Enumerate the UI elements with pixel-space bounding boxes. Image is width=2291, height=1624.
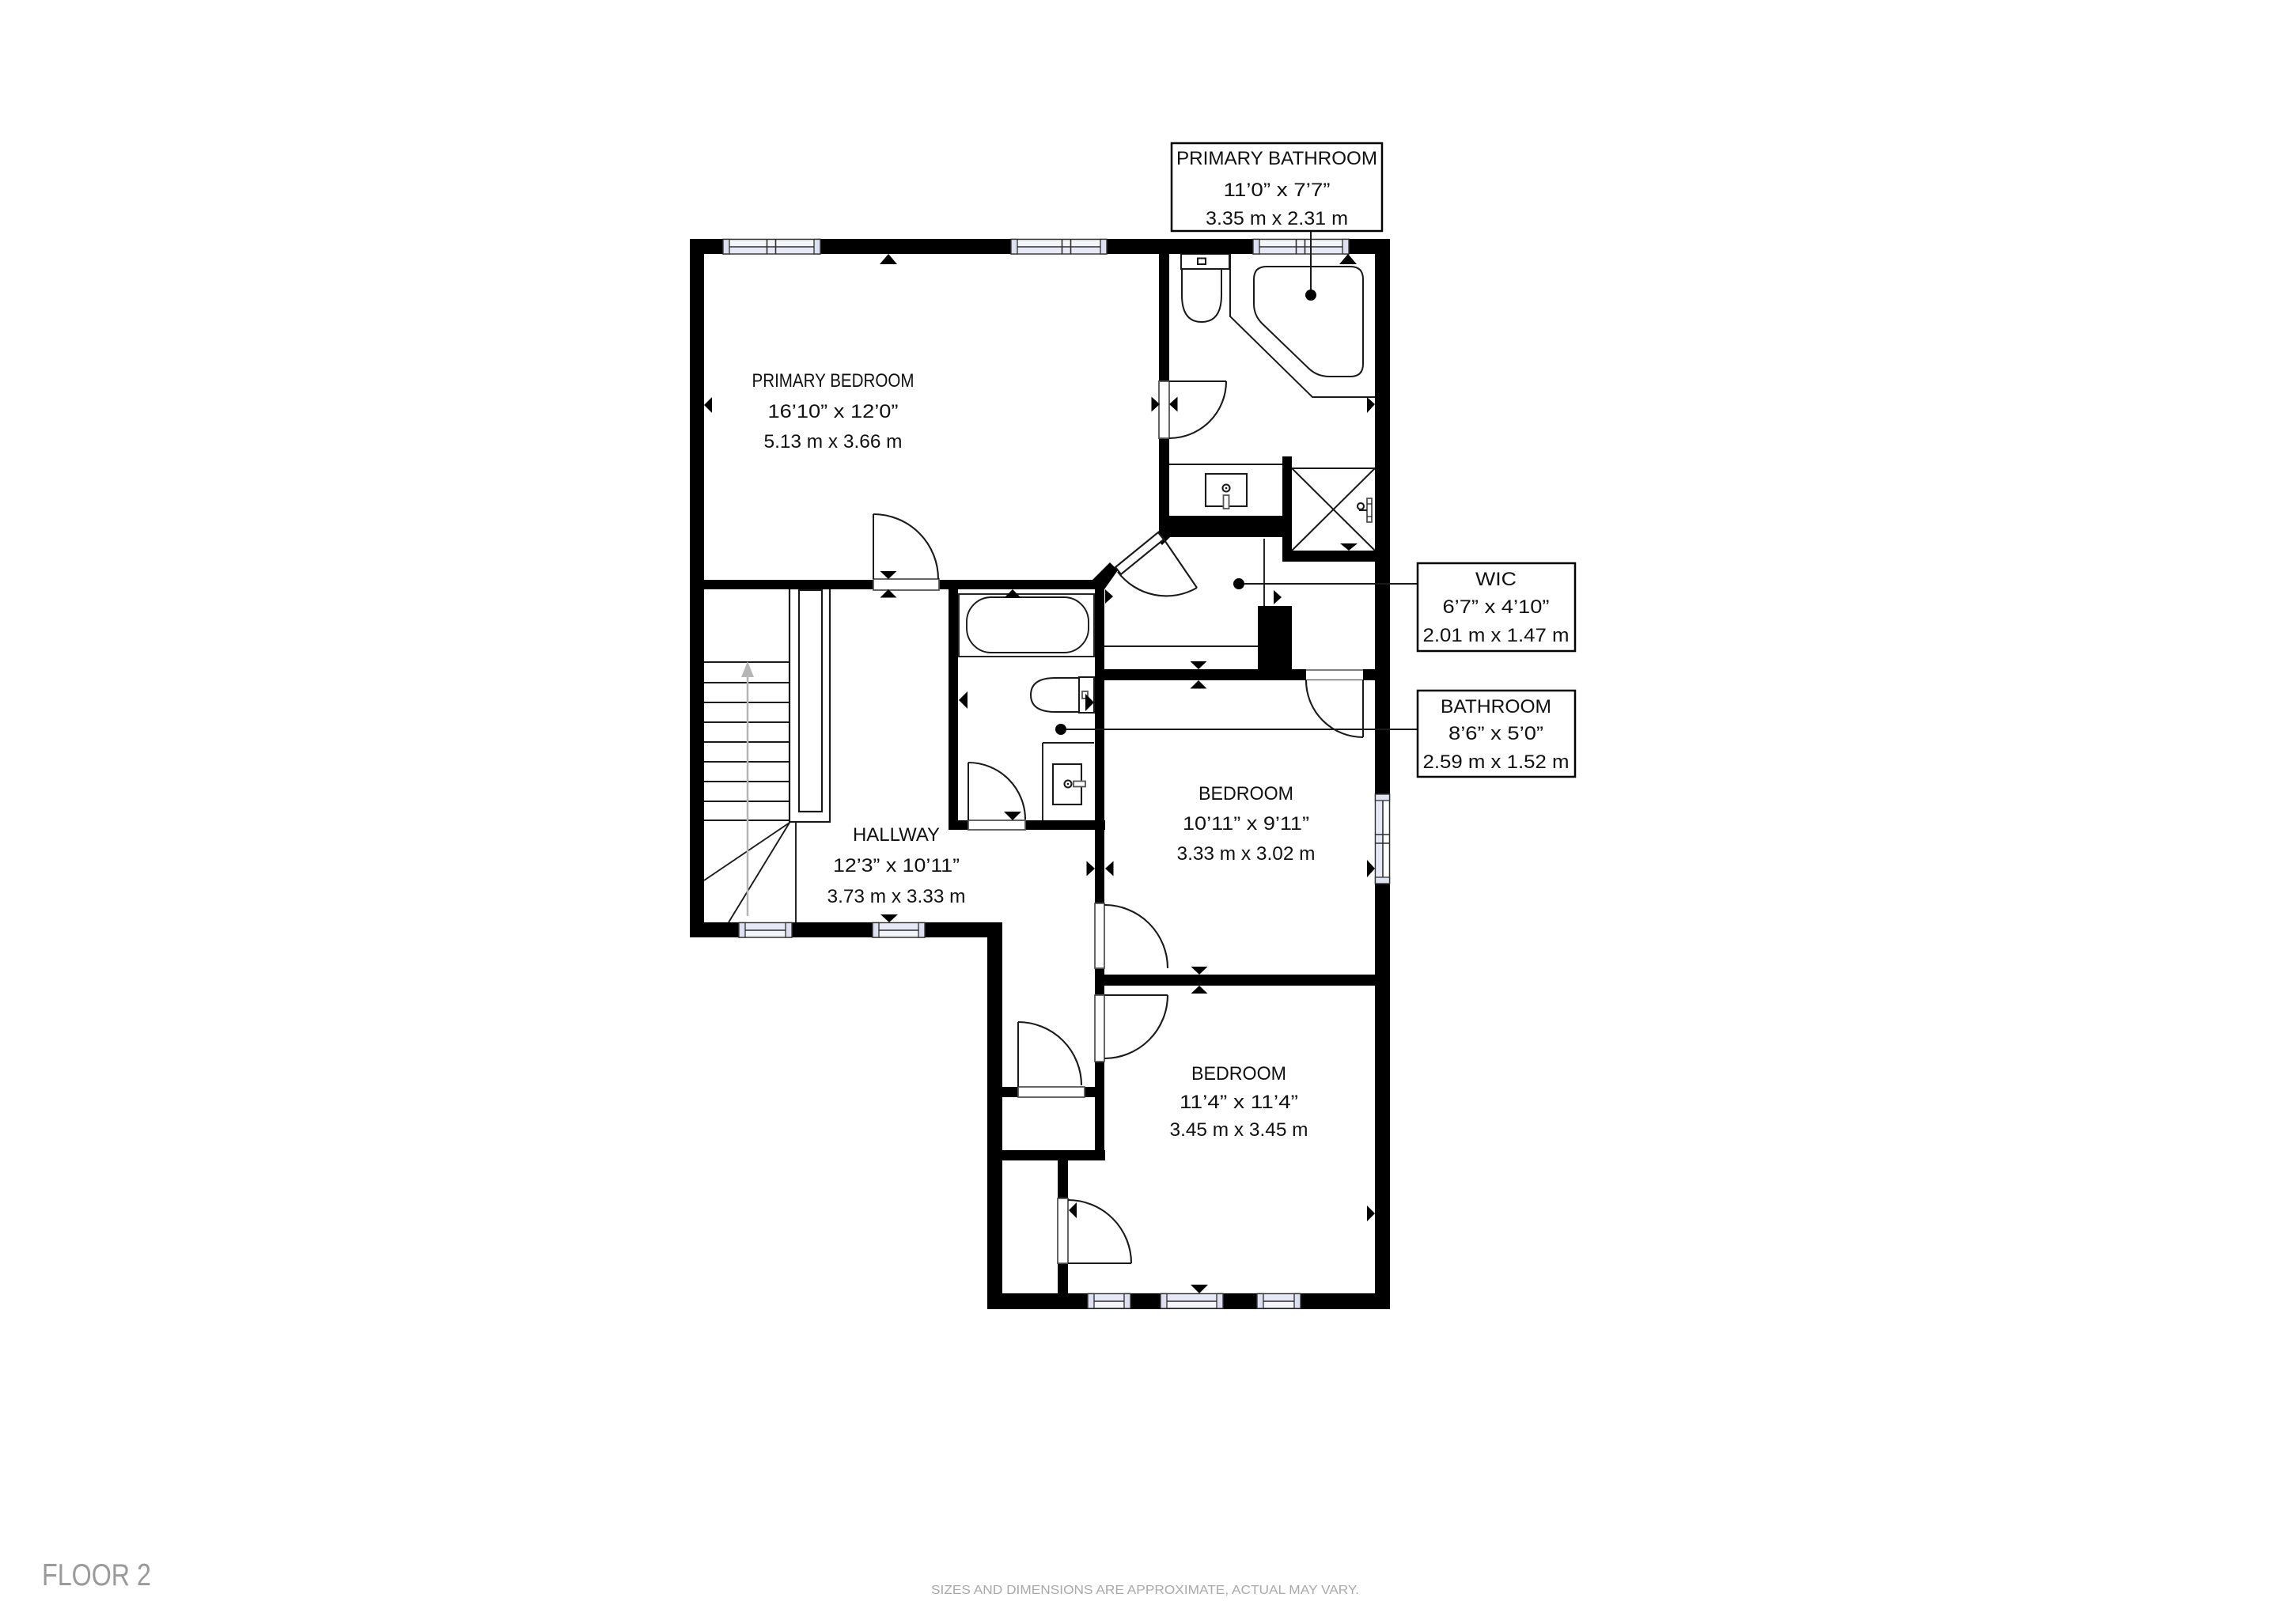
svg-text:6’7” x 4’10”: 6’7” x 4’10” (1443, 596, 1550, 618)
svg-text:PRIMARY BEDROOM: PRIMARY BEDROOM (752, 370, 915, 392)
svg-text:8’6” x 5’0”: 8’6” x 5’0” (1448, 723, 1543, 744)
svg-text:2.01 m x 1.47 m: 2.01 m x 1.47 m (1423, 625, 1570, 646)
svg-text:11’4” x 11’4”: 11’4” x 11’4” (1180, 1092, 1298, 1113)
svg-text:16’10” x 12’0”: 16’10” x 12’0” (768, 401, 899, 422)
svg-text:11’0” x 7’7”: 11’0” x 7’7” (1224, 180, 1331, 201)
svg-text:10’11” x 9’11”: 10’11” x 9’11” (1183, 813, 1309, 835)
svg-text:BATHROOM: BATHROOM (1441, 696, 1551, 717)
svg-text:SIZES AND DIMENSIONS ARE APPRO: SIZES AND DIMENSIONS ARE APPROXIMATE, AC… (931, 1584, 1359, 1597)
svg-text:3.35 m x 2.31 m: 3.35 m x 2.31 m (1206, 208, 1348, 229)
svg-text:WIC: WIC (1475, 569, 1517, 590)
svg-text:BEDROOM: BEDROOM (1191, 1063, 1286, 1085)
svg-text:5.13 m x 3.66 m: 5.13 m x 3.66 m (764, 431, 903, 452)
svg-text:12’3” x 10’11”: 12’3” x 10’11” (833, 855, 960, 876)
svg-text:BEDROOM: BEDROOM (1199, 783, 1293, 804)
svg-text:HALLWAY: HALLWAY (853, 824, 940, 846)
svg-text:3.33 m x 3.02 m: 3.33 m x 3.02 m (1177, 843, 1316, 865)
svg-text:PRIMARY BATHROOM: PRIMARY BATHROOM (1176, 148, 1377, 169)
svg-text:FLOOR 2: FLOOR 2 (42, 1558, 151, 1592)
svg-text:2.59 m x 1.52 m: 2.59 m x 1.52 m (1423, 751, 1570, 773)
svg-text:3.73 m x 3.33 m: 3.73 m x 3.33 m (827, 886, 966, 907)
svg-text:3.45 m x 3.45 m: 3.45 m x 3.45 m (1170, 1119, 1308, 1141)
